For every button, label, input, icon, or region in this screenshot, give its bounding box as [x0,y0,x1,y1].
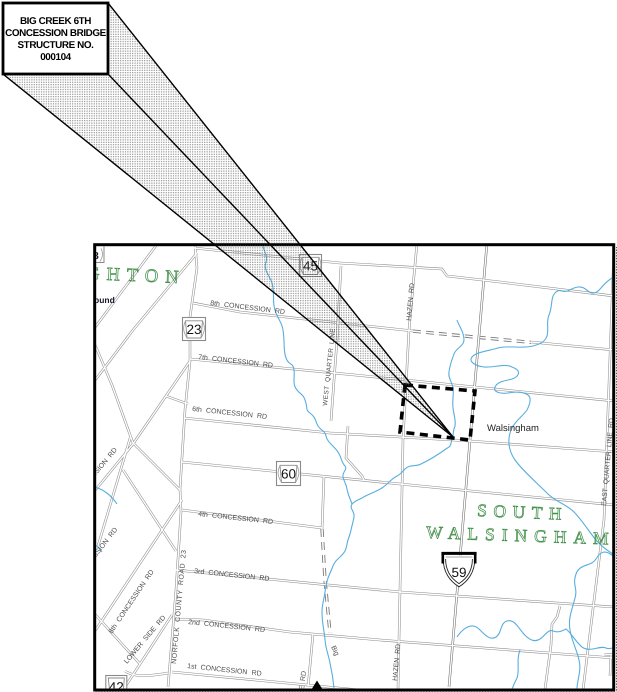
svg-text:ound: ound [94,295,115,305]
svg-text:60: 60 [281,467,296,482]
svg-text:SOUTH: SOUTH [477,500,569,524]
svg-text:BIG CREEK 6TH: BIG CREEK 6TH [20,16,91,27]
svg-text:000104: 000104 [40,52,71,63]
svg-text:Walsingham: Walsingham [487,423,539,434]
svg-text:STRUCTURE NO.: STRUCTURE NO. [18,40,95,51]
svg-text:23: 23 [186,322,201,337]
svg-text:CONCESSION BRIDGE: CONCESSION BRIDGE [5,28,107,39]
svg-text:59: 59 [451,565,466,580]
